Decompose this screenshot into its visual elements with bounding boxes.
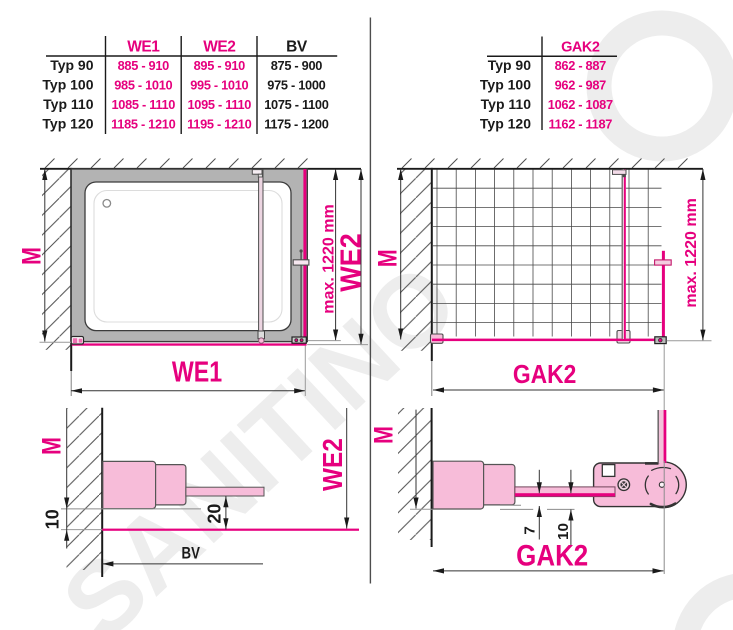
svg-text:975 - 1000: 975 - 1000 [267, 78, 325, 93]
svg-text:1075 - 1100: 1075 - 1100 [264, 97, 328, 112]
svg-text:max. 1220 mm: max. 1220 mm [683, 198, 700, 307]
svg-text:Typ 90: Typ 90 [50, 57, 94, 73]
svg-text:WE2: WE2 [316, 438, 348, 491]
svg-text:Typ 90: Typ 90 [488, 57, 532, 73]
svg-text:Typ 120: Typ 120 [480, 116, 531, 132]
svg-text:1162 - 1187: 1162 - 1187 [548, 117, 612, 132]
svg-text:Typ 110: Typ 110 [43, 96, 94, 112]
svg-text:GAK2: GAK2 [516, 539, 588, 572]
svg-text:WE1: WE1 [172, 355, 222, 388]
svg-text:7: 7 [522, 526, 539, 534]
svg-text:M: M [373, 249, 403, 267]
svg-text:1175 - 1200: 1175 - 1200 [264, 117, 328, 132]
svg-text:M: M [17, 247, 47, 265]
svg-text:M: M [37, 437, 67, 455]
svg-text:1095 - 1110: 1095 - 1110 [187, 97, 251, 112]
svg-text:WE2: WE2 [203, 39, 235, 56]
svg-text:Typ 120: Typ 120 [42, 116, 93, 132]
svg-text:20: 20 [204, 504, 224, 524]
svg-text:GAK2: GAK2 [561, 40, 600, 56]
svg-text:1085 - 1110: 1085 - 1110 [111, 97, 175, 112]
svg-text:WE2: WE2 [335, 233, 367, 291]
svg-text:875 - 900: 875 - 900 [271, 58, 323, 73]
svg-text:862 - 887: 862 - 887 [555, 58, 607, 73]
svg-text:1195 - 1210: 1195 - 1210 [187, 117, 251, 132]
svg-text:885 - 910: 885 - 910 [118, 58, 170, 73]
svg-text:Typ 100: Typ 100 [42, 77, 93, 93]
svg-text:995 - 1010: 995 - 1010 [190, 78, 248, 93]
svg-text:10: 10 [43, 509, 63, 529]
svg-text:10: 10 [555, 523, 572, 540]
svg-text:BV: BV [181, 544, 200, 563]
svg-text:1062 - 1087: 1062 - 1087 [548, 97, 613, 112]
svg-text:M: M [369, 426, 399, 444]
svg-text:Typ 110: Typ 110 [481, 96, 532, 112]
svg-text:WE1: WE1 [127, 39, 160, 56]
svg-text:895 - 910: 895 - 910 [194, 58, 246, 73]
svg-text:Typ 100: Typ 100 [480, 77, 531, 93]
svg-text:GAK2: GAK2 [513, 361, 577, 390]
svg-text:1185 - 1210: 1185 - 1210 [111, 117, 175, 132]
svg-text:985 - 1010: 985 - 1010 [114, 78, 172, 93]
svg-text:962 - 987: 962 - 987 [555, 78, 607, 93]
svg-text:BV: BV [286, 39, 308, 56]
